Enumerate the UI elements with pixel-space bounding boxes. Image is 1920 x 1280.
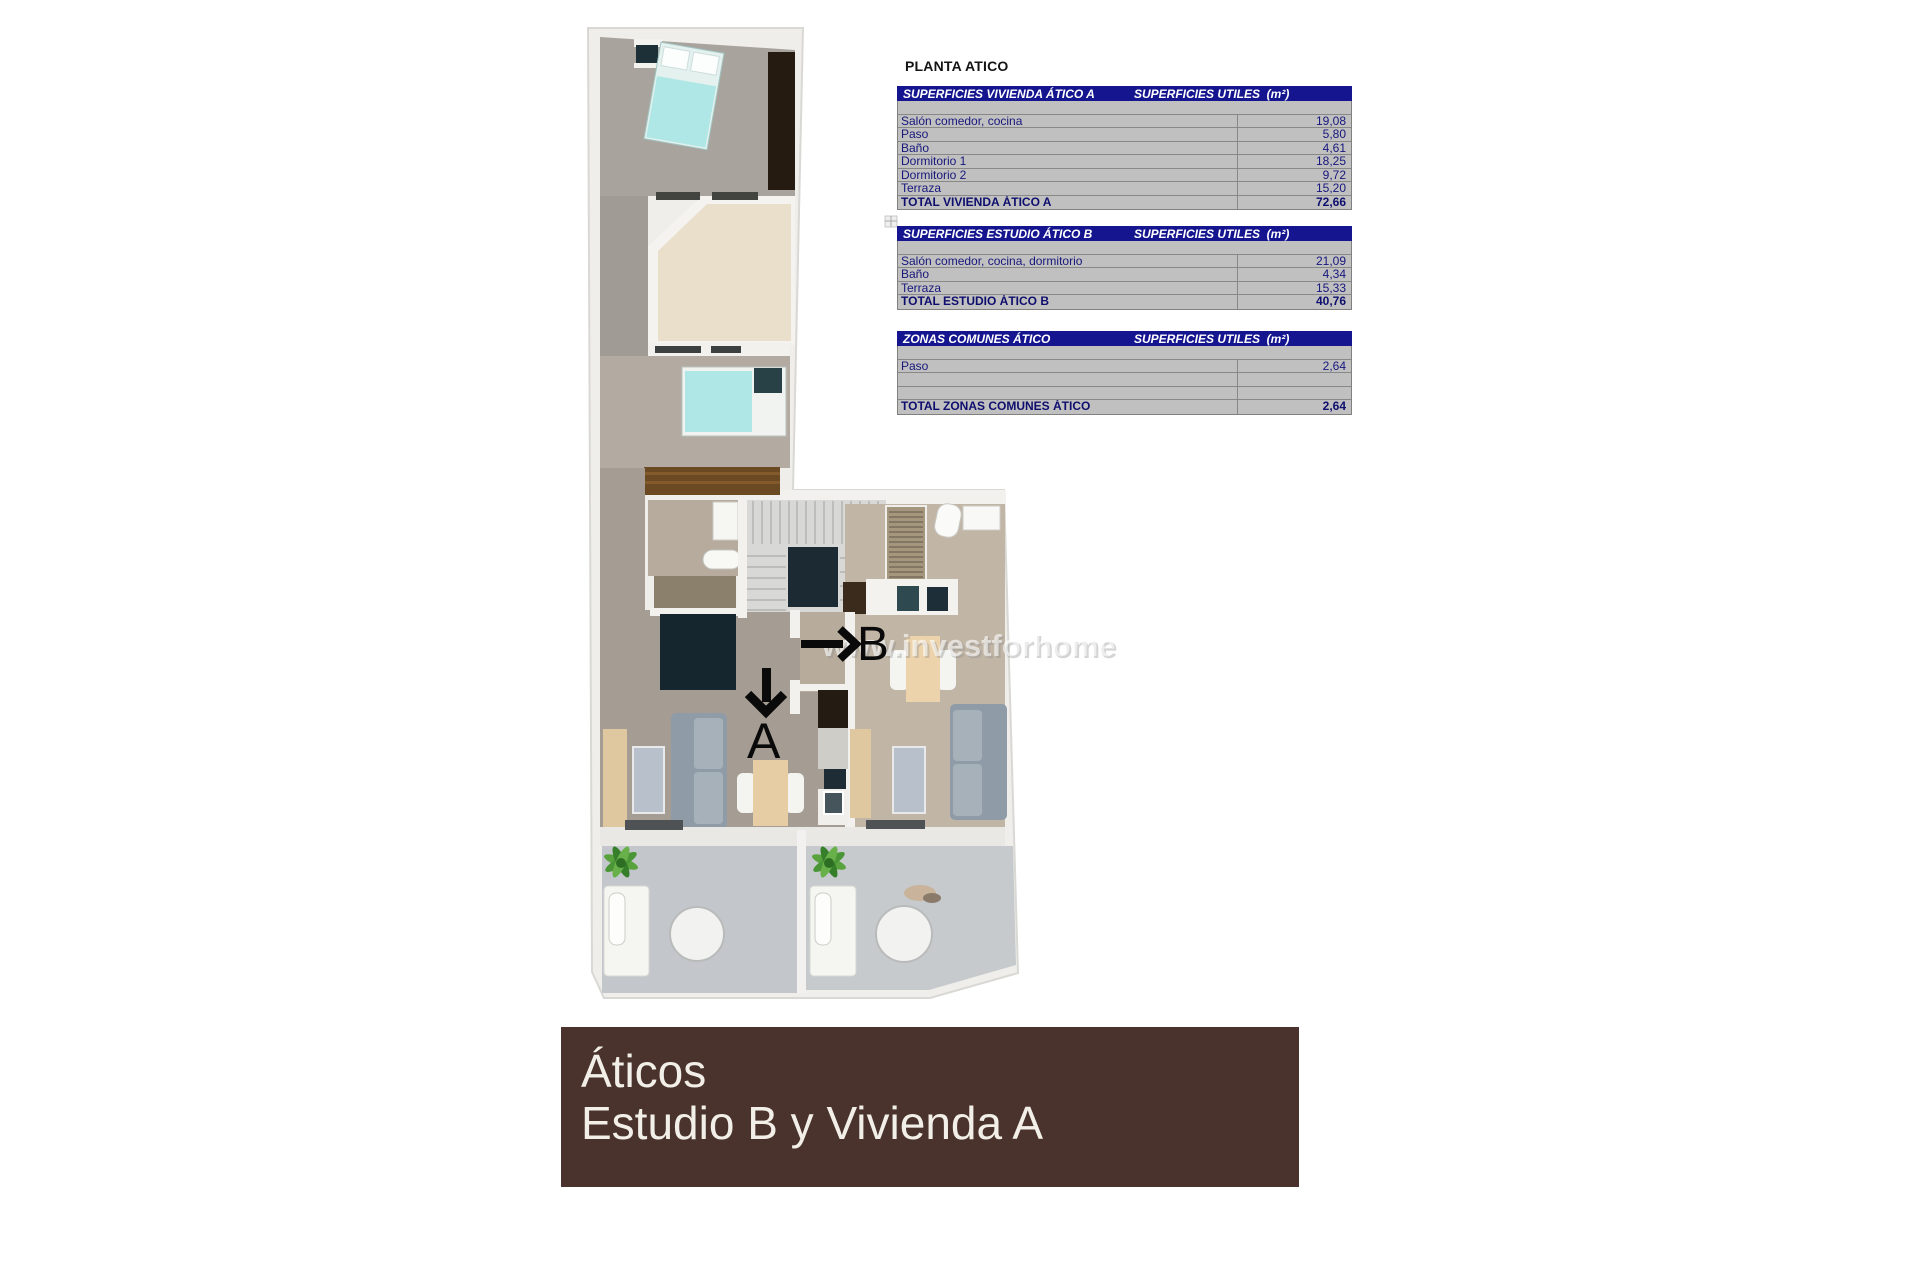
svg-text:B: B [857, 618, 889, 671]
svg-text:A: A [747, 713, 781, 769]
